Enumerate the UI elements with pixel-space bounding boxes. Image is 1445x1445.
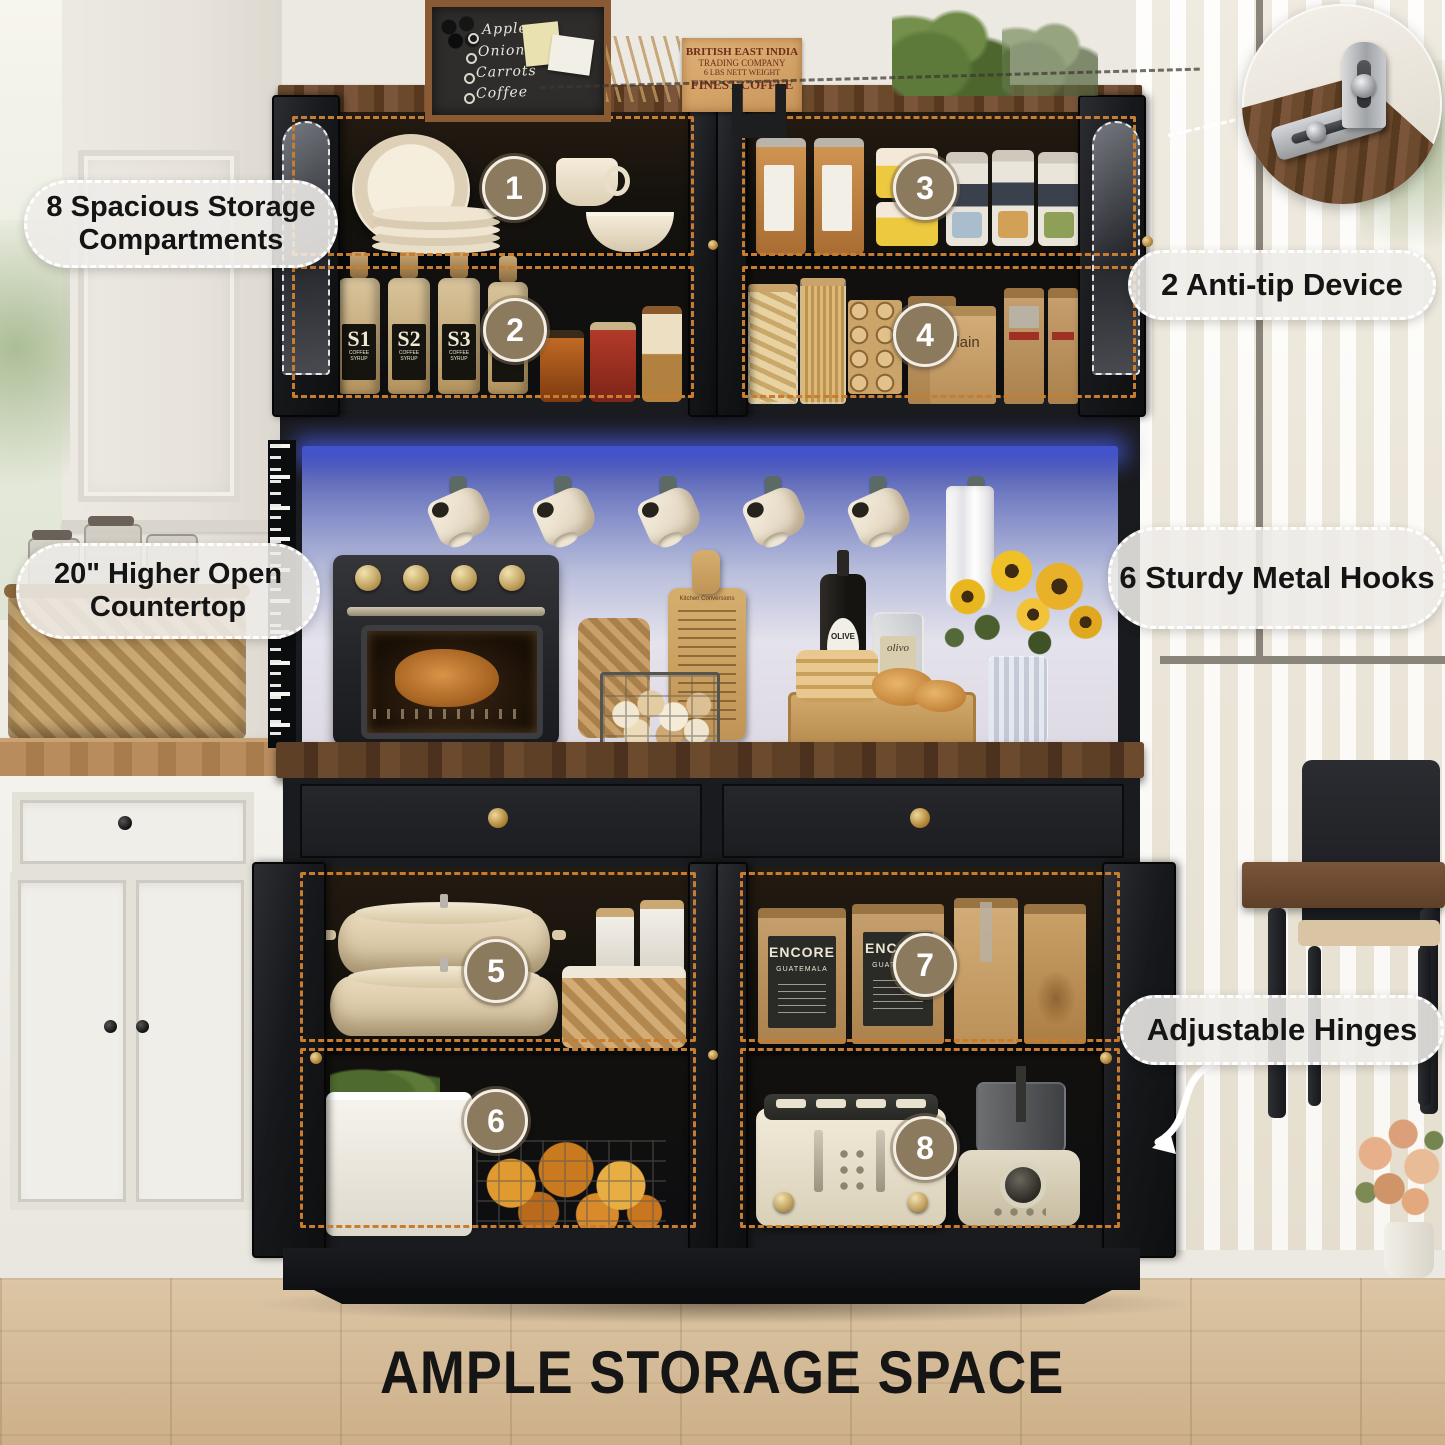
headline-text: AMPLE STORAGE SPACE: [380, 1338, 1064, 1407]
left-cabinet-door: [128, 872, 252, 1210]
sign-line-3: 6 LBS NETT WEIGHT: [682, 68, 802, 77]
compartment-badge-4: 4: [893, 303, 957, 367]
compartment-badge-5: 5: [464, 939, 528, 1003]
door-knob-gold: [1142, 236, 1153, 247]
badge-number: 5: [487, 953, 505, 990]
led-light-strip: [302, 446, 1118, 456]
glass-jar-lid: [88, 516, 134, 526]
chalk-bullet: [464, 73, 475, 84]
oven-knob: [499, 565, 525, 591]
callout-anti-tip: 2 Anti-tip Device: [1128, 250, 1436, 320]
badge-number: 8: [916, 1130, 934, 1167]
basket-wires: [603, 675, 717, 747]
callout-metal-hooks: 6 Sturdy Metal Hooks: [1108, 527, 1445, 629]
bracket-screw: [1352, 74, 1376, 98]
callout-storage-compartments: 8 Spacious Storage Compartments: [24, 180, 338, 268]
egg-basket: [600, 672, 720, 750]
pancake-stack: [796, 650, 878, 702]
chair-seat: [1298, 920, 1440, 946]
sticky-note: [548, 34, 595, 75]
chalk-bullet: [468, 33, 479, 44]
left-door-knob: [104, 1020, 117, 1033]
sign-line-2: TRADING COMPANY: [682, 58, 802, 68]
potted-plant: [892, 0, 1010, 96]
left-door-knob: [136, 1020, 149, 1033]
compartment-badge-3: 3: [893, 156, 957, 220]
sign-line-1: BRITISH EAST INDIA: [682, 38, 802, 58]
dining-table-top: [1242, 862, 1445, 908]
left-cabinet-door: [10, 872, 134, 1210]
compartment-badge-7: 7: [893, 933, 957, 997]
oven-knob: [403, 565, 429, 591]
chalk-bullet: [466, 53, 477, 64]
anti-tip-bracket-plate: [1342, 42, 1386, 128]
croissant: [914, 680, 966, 712]
left-drawer-knob: [118, 816, 132, 830]
door-knob-gold: [708, 240, 718, 250]
oven-rack: [373, 709, 519, 719]
badge-number: 4: [916, 317, 934, 354]
hinge-pointer-arrow: [1124, 1058, 1224, 1178]
oven-knob: [451, 565, 477, 591]
left-cabinet-drawer: [12, 792, 254, 872]
left-window-greenery: [0, 220, 70, 540]
dried-branches: [606, 36, 680, 102]
window-sill: [1160, 656, 1445, 664]
cutting-board-handle: [692, 550, 720, 594]
chalkboard: Apples Onions Carrots Coffee: [425, 0, 611, 122]
oven-handle: [347, 607, 545, 616]
drawer-knob-gold: [910, 808, 930, 828]
drawer-knob-gold: [488, 808, 508, 828]
badge-number: 7: [916, 947, 934, 984]
compartment-badge-6: 6: [464, 1089, 528, 1153]
badge-number: 6: [487, 1103, 505, 1140]
door-knob-gold: [708, 1050, 718, 1060]
oven-window: [361, 625, 543, 739]
flower-vase: [1384, 1222, 1434, 1278]
eucalyptus-stems: [1002, 14, 1098, 96]
callout-countertop: 20" Higher Open Countertop: [16, 543, 320, 639]
anti-tip-inset-photo: [1242, 4, 1442, 204]
flower-bouquet: [1352, 1108, 1445, 1238]
headline: AMPLE STORAGE SPACE: [0, 1338, 1445, 1407]
air-fryer-oven: [333, 555, 559, 745]
badge-number: 2: [506, 312, 524, 349]
left-counter: [0, 738, 282, 780]
compartment-badge-1: 1: [482, 156, 546, 220]
chalk-item: Coffee: [476, 84, 529, 102]
badge-number: 3: [916, 170, 934, 207]
compartment-badge-8: 8: [893, 1116, 957, 1180]
glass-jar-lid: [32, 530, 72, 540]
board-title: Kitchen Conversions: [674, 596, 740, 602]
product-infographic: S1 COFFEE SYRUP S2 COFFEE SYRUP S3 COFFE…: [0, 0, 1445, 1445]
cabinet-foot: [310, 1288, 1116, 1304]
callout-adjustable-hinges: Adjustable Hinges: [1120, 995, 1444, 1065]
glass-vase: [988, 656, 1048, 746]
countertop-slab: [276, 742, 1144, 778]
oven-knob: [355, 565, 381, 591]
compartment-badge-2: 2: [483, 298, 547, 362]
badge-number: 1: [505, 170, 523, 207]
chalk-bullet: [464, 93, 475, 104]
roast-chicken: [395, 649, 499, 707]
cabinet-plinth: [283, 1248, 1140, 1290]
bottle-neck: [837, 550, 849, 576]
